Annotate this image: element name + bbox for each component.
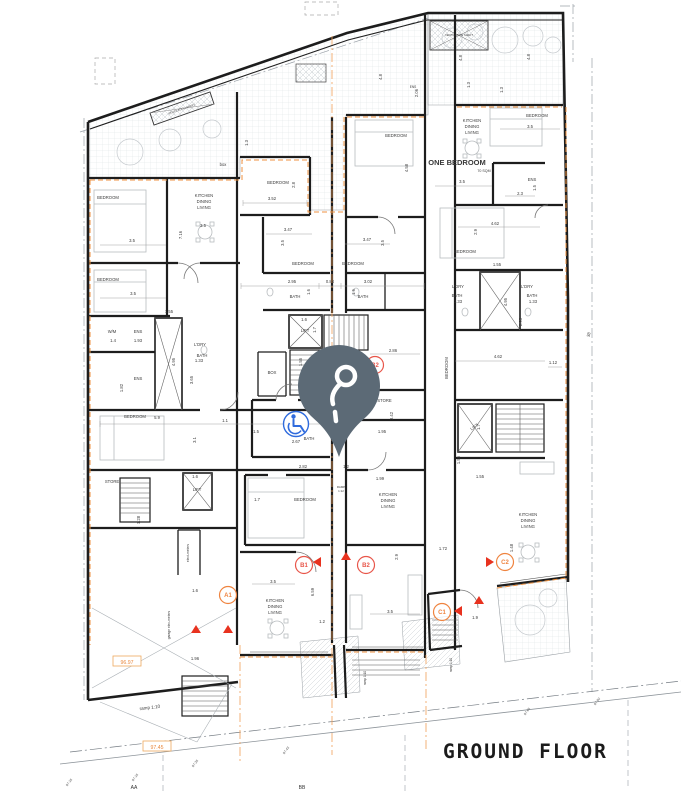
dim-label: 2.82	[299, 464, 308, 469]
room-label: LIVING	[197, 205, 211, 210]
dim-label: 3.65	[189, 375, 194, 384]
dim-label: 7.16	[178, 230, 183, 239]
dim-label: 1.99	[376, 476, 385, 481]
floor-title: GROUND FLOOR	[443, 740, 608, 763]
note-label: garage elec-meters	[167, 610, 171, 639]
dim-label: 1.95	[378, 429, 387, 434]
dim-label: 1.55	[456, 455, 461, 464]
dim-label: 1.55	[493, 262, 502, 267]
dim-label: 1.6	[192, 588, 198, 593]
dim-label: 1.93	[134, 338, 143, 343]
room-label: BEDROOM	[292, 261, 314, 266]
level-value: 96.97	[121, 660, 134, 666]
entrance-arrow	[313, 557, 321, 567]
unit-marker-label: C1	[438, 610, 446, 616]
room-label: BEDROOM	[444, 357, 449, 379]
room-label: BEDROOM	[342, 261, 364, 266]
dim-label: 3.5	[270, 579, 276, 584]
dim-label: 2.95	[518, 317, 523, 326]
room-label: BEDROOM	[267, 180, 289, 185]
spot-level: 97.65	[523, 707, 531, 716]
dim-label: 1.7	[254, 497, 260, 502]
room-label: BEDROOM	[124, 414, 146, 419]
unit-marker-label: B2	[362, 563, 370, 569]
dim-label: 2.95	[288, 279, 297, 284]
dim-label: 3.5	[130, 291, 136, 296]
dim-label: 2.06	[414, 88, 419, 97]
dim-label: 3.5	[129, 238, 135, 243]
note-label: 1:12	[338, 489, 344, 493]
note-label: ramp 1:10	[363, 671, 367, 686]
room-label: LIVING	[521, 524, 535, 529]
room-label: LIVING	[381, 504, 395, 509]
level-badges: 96.9797.45	[113, 656, 171, 751]
level-badge: 97.45	[143, 741, 171, 751]
dim-label: 38	[586, 331, 592, 337]
unit-marker-a1: A1	[220, 587, 237, 604]
unit-marker-b1: B1	[296, 557, 313, 574]
entrance-arrow	[191, 625, 201, 633]
dim-label: 3.5	[200, 223, 206, 228]
dim-label: 1.6	[301, 317, 307, 322]
area-label: 70 SQM	[477, 169, 490, 173]
room-label: BATH	[358, 294, 369, 299]
dim-label: 1.33	[454, 299, 463, 304]
room-label: KITCHEN	[463, 118, 481, 123]
dim-label: 2.9	[473, 228, 478, 234]
dim-label: 1.48	[509, 543, 514, 552]
dim-label: 3.47	[363, 237, 372, 242]
note-label: ramp 1:10	[139, 704, 161, 712]
dim-label: 1.9	[472, 615, 478, 620]
spot-level: 97.16	[131, 773, 139, 782]
dim-label: 2.86	[389, 348, 398, 353]
entrance-arrow	[474, 596, 484, 604]
dim-label: 1.55	[165, 309, 174, 314]
room-label: L'DRY	[194, 342, 206, 347]
room-label: ENS	[528, 177, 537, 182]
entrance-arrow	[341, 552, 351, 560]
room-label: KITCHEN	[379, 492, 397, 497]
dim-label: 1.33	[195, 358, 204, 363]
dim-label: 4.8	[526, 53, 531, 59]
note-label: elect-meters	[186, 544, 190, 562]
room-label: ENS	[410, 85, 417, 89]
floor-plan-page: BEDROOMBEDROOMBEDROOMBEDROOMBEDROOMBEDRO…	[0, 0, 681, 800]
dim-label: 3.5	[527, 124, 533, 129]
room-label: KITCHEN	[519, 512, 537, 517]
spot-level: 97.43	[282, 746, 290, 755]
dim-label: 3.02	[364, 279, 373, 284]
ramp-guides	[92, 608, 236, 742]
dim-label: 3.5	[459, 179, 465, 184]
dim-label: 2.9	[394, 553, 399, 559]
room-label: L'DRY	[452, 284, 464, 289]
room-label: KITCHEN	[195, 193, 213, 198]
room-label: STORE	[105, 479, 120, 484]
room-label: BOX	[268, 370, 277, 375]
room-label: LIFT	[193, 487, 202, 492]
dim-label: 4.8	[378, 73, 383, 79]
room-label: BEDROOM	[97, 277, 119, 282]
section-label: BB	[299, 785, 306, 791]
section-label: AA	[131, 785, 138, 791]
spot-level: 97.26	[191, 759, 199, 768]
dim-label: 1.5	[532, 184, 537, 190]
dim-label: 2.3	[517, 191, 523, 196]
room-label: DINING	[465, 124, 480, 129]
unit-marker-label: C2	[501, 560, 509, 566]
room-label: DINING	[197, 199, 212, 204]
dim-label: 1.12	[549, 360, 558, 365]
dim-label: 1.6	[351, 288, 356, 294]
dim-label: 1.5	[253, 429, 259, 434]
dim-label: 1.3	[244, 139, 249, 145]
unit-marker-c1: C1	[434, 604, 451, 621]
section-labels: AABB	[131, 785, 306, 791]
unit-marker-label: A1	[224, 593, 232, 599]
room-label: BEDROOM	[385, 133, 407, 138]
dim-label: 1.55	[298, 357, 303, 366]
wheelchair-icon	[284, 412, 309, 437]
floor-plan-canvas: BEDROOMBEDROOMBEDROOMBEDROOMBEDROOMBEDRO…	[0, 0, 681, 800]
dim-label: 3.1	[192, 436, 197, 442]
room-label: BATH	[527, 293, 538, 298]
room-label: BATH	[304, 436, 315, 441]
dim-label: 3.52	[268, 196, 277, 201]
dim-label: 1.6	[192, 474, 198, 479]
dim-label: 5.9	[154, 415, 160, 420]
room-label: BATH	[290, 294, 301, 299]
room-label: ENS	[134, 329, 143, 334]
dim-label: 4.58	[404, 163, 409, 172]
unit-marker-b2: B2	[358, 557, 375, 574]
room-label: ENS	[134, 376, 143, 381]
room-label: box	[220, 162, 228, 167]
room-label: BATH	[452, 293, 463, 298]
shaft-label: VENTILATION SHAFT	[445, 33, 473, 37]
unit-marker-label: B1	[300, 563, 308, 569]
dim-label: 6.59	[310, 587, 315, 596]
dim-label: 3.5	[387, 609, 393, 614]
room-label: DINING	[521, 518, 536, 523]
dim-label: 4.95	[503, 297, 508, 306]
dim-label: 1.33	[529, 299, 538, 304]
level-badge: 96.97	[113, 656, 141, 666]
room-label: BEDROOM	[97, 195, 119, 200]
dim-label: 1.7	[476, 423, 481, 429]
dim-label: 1.3	[499, 86, 504, 92]
dim-label: 1.2	[343, 464, 349, 469]
dim-label: 1.72	[439, 546, 448, 551]
dim-label: 1.3	[466, 81, 471, 87]
room-label: L'DRY	[521, 284, 533, 289]
room-label: KITCHEN	[266, 598, 284, 603]
dim-label: 2.8	[291, 181, 296, 187]
dim-label: 1.82	[119, 383, 124, 392]
unit-marker-c2: C2	[497, 554, 514, 571]
dim-label: 2.67	[292, 439, 301, 444]
dim-label: 3.47	[284, 227, 293, 232]
dim-label: 4.8	[458, 54, 463, 60]
room-label: BEDROOM	[526, 113, 548, 118]
dim-label: 1.55	[476, 474, 485, 479]
dim-label: 3.5	[280, 239, 285, 245]
dim-label: 4.62	[494, 354, 503, 359]
room-label: BEDROOM	[294, 497, 316, 502]
dim-label: 1.7	[312, 326, 317, 332]
dim-label: 3.42	[389, 411, 394, 420]
room-label: LIVING	[465, 130, 479, 135]
dim-label: 4.62	[491, 221, 500, 226]
dim-label: 3.5	[380, 239, 385, 245]
room-label: BEDROOM	[454, 249, 476, 254]
entrance-arrow	[486, 557, 494, 567]
room-label: DINING	[381, 498, 396, 503]
level-value: 97.45	[151, 745, 164, 751]
dim-label: 4.95	[171, 357, 176, 366]
unit-type-label: ONE BEDROOM	[428, 158, 486, 167]
dim-label: 1.6	[306, 288, 311, 294]
room-label: LIVING	[268, 610, 282, 615]
dim-label: 1.4	[110, 338, 116, 343]
dim-label: 1.96	[191, 656, 200, 661]
room-label: DINING	[268, 604, 283, 609]
note-label: ramp 1:10	[449, 658, 453, 673]
dim-label: 1.1	[222, 418, 228, 423]
dim-label: 1.28	[136, 515, 141, 524]
spot-level: 97.16	[65, 778, 73, 787]
entrance-arrow	[223, 625, 233, 633]
dim-label: 0.84	[326, 279, 335, 284]
room-label: LIFT	[301, 328, 310, 333]
dim-label: 1.2	[319, 619, 325, 624]
room-label: W/M	[108, 329, 117, 334]
